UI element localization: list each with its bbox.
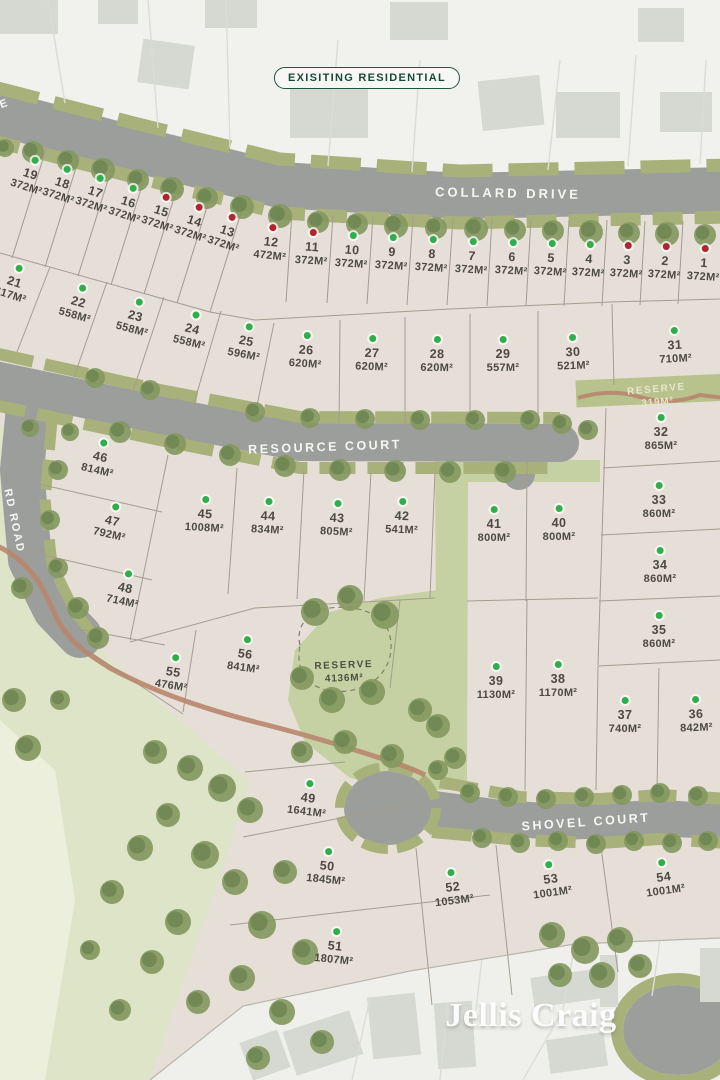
- lot-status-dot: [434, 336, 441, 343]
- lot-number: 10: [344, 243, 360, 259]
- lot-number: 5: [547, 251, 555, 266]
- lot-area: 372M²: [8, 177, 43, 200]
- street-label-rd-road: RD ROAD: [1, 488, 26, 554]
- lot-status-dot: [129, 184, 138, 193]
- lot-area: 372M²: [139, 214, 174, 237]
- lot-status-dot: [334, 500, 341, 507]
- lot-area: 800M²: [543, 531, 576, 544]
- lot-number: 26: [298, 343, 314, 359]
- lot-50: 501845M²: [306, 846, 349, 889]
- lot-29: 29557M²: [487, 336, 520, 375]
- lot-56: 56841M²: [226, 634, 264, 677]
- lot-status-dot: [509, 239, 516, 246]
- lot-area: 865M²: [645, 440, 678, 453]
- lot-area: 596M²: [226, 346, 261, 365]
- lot-area: 814M²: [80, 461, 115, 481]
- lot-area: 1130M²: [477, 689, 516, 702]
- lot-status-dot: [692, 696, 699, 703]
- lot-area: 740M²: [609, 723, 642, 736]
- lot-area: 1008M²: [184, 521, 224, 536]
- lot-area: 372M²: [172, 224, 207, 247]
- street-label-collard-drive: COLLARD DRIVE: [435, 184, 581, 202]
- lot-status-dot: [172, 654, 180, 662]
- lot-24: 24558M²: [171, 308, 212, 354]
- lot-55: 55476M²: [154, 652, 192, 696]
- lot-area: 1170M²: [539, 687, 578, 700]
- lot-area: 476M²: [154, 677, 188, 695]
- lot-51: 511807M²: [314, 926, 357, 969]
- reserve-label: RESERVE319M²: [627, 380, 688, 411]
- lot-status-dot: [325, 848, 333, 856]
- lot-number: 50: [319, 858, 335, 874]
- lot-area: 372M²: [454, 263, 488, 278]
- lot-status-dot: [491, 506, 498, 513]
- lot-status-dot: [309, 229, 316, 236]
- lot-46: 46814M²: [80, 436, 121, 482]
- lot-41: 41800M²: [478, 506, 511, 545]
- lot-number: 39: [489, 674, 504, 689]
- lot-43: 43805M²: [320, 499, 355, 540]
- lot-area: 472M²: [253, 248, 287, 265]
- lot-status-dot: [548, 240, 555, 247]
- lot-number: 29: [496, 347, 511, 362]
- lot-area: 372M²: [494, 264, 528, 279]
- lot-33: 33860M²: [643, 482, 676, 521]
- lot-39: 391130M²: [477, 663, 516, 702]
- lot-area: 834M²: [251, 523, 284, 538]
- lot-4: 4372M²: [571, 240, 606, 281]
- lot-area: 372M²: [294, 254, 328, 269]
- lot-number: 30: [565, 345, 580, 361]
- lot-number: 7: [468, 249, 476, 264]
- reserve-name: RESERVE: [314, 658, 373, 673]
- lot-number: 12: [263, 234, 279, 250]
- lot-status-dot: [78, 284, 87, 293]
- lot-status-dot: [124, 570, 132, 578]
- lot-status-dot: [399, 498, 406, 505]
- lot-10: 10372M²: [334, 231, 369, 272]
- lot-status-dot: [15, 264, 24, 273]
- lot-7: 7372M²: [454, 237, 489, 278]
- lot-5: 5372M²: [533, 239, 568, 280]
- lot-34: 34860M²: [644, 547, 677, 586]
- lot-status-dot: [243, 636, 251, 644]
- lot-status-dot: [658, 414, 665, 421]
- lot-26: 26620M²: [288, 331, 323, 372]
- lot-area: 558M²: [57, 305, 92, 327]
- lot-area: 842M²: [680, 721, 713, 735]
- lot-status-dot: [662, 243, 669, 250]
- agency-logo: Jellis Craig: [445, 997, 616, 1035]
- lot-status-dot: [556, 505, 563, 512]
- lot-number: 2: [661, 254, 669, 269]
- lot-number: 6: [508, 250, 516, 265]
- lot-35: 35860M²: [643, 612, 676, 651]
- lot-11: 11372M²: [294, 228, 329, 269]
- lot-status-dot: [429, 236, 436, 243]
- lot-area: 558M²: [171, 333, 206, 354]
- lot-area: 1001M²: [646, 882, 687, 901]
- lot-30: 30521M²: [556, 333, 590, 373]
- lot-52: 521053M²: [431, 867, 475, 911]
- lot-number: 44: [260, 509, 275, 525]
- lot-status-dot: [63, 165, 72, 174]
- lot-area: 372M²: [205, 234, 240, 257]
- lot-number: 9: [388, 245, 396, 260]
- lot-status-dot: [447, 869, 455, 877]
- lot-number: 38: [551, 672, 566, 687]
- lot-status-dot: [265, 498, 272, 505]
- lot-area: 714M²: [105, 592, 140, 612]
- lot-number: 45: [197, 507, 212, 523]
- lot-number: 32: [654, 425, 669, 440]
- lot-status-dot: [111, 503, 119, 511]
- lot-6: 6372M²: [494, 238, 529, 279]
- lot-status-dot: [657, 547, 664, 554]
- reserve-area: 4136M²: [315, 671, 374, 686]
- lot-48: 48714M²: [105, 567, 145, 612]
- lot-32: 32865M²: [645, 414, 678, 453]
- lot-22: 22558M²: [57, 280, 99, 327]
- lot-area: 805M²: [320, 525, 353, 540]
- lot-40: 40800M²: [543, 505, 576, 544]
- lot-44: 44834M²: [251, 497, 286, 538]
- lot-number: 49: [300, 790, 316, 807]
- lot-area: 372M²: [571, 266, 605, 281]
- lot-23: 23558M²: [114, 294, 156, 340]
- lot-37: 37740M²: [609, 697, 642, 736]
- street-label-resource-court: RESOURCE COURT: [248, 437, 402, 456]
- lot-area: 710M²: [659, 352, 692, 367]
- lot-31: 31710M²: [658, 326, 693, 367]
- lot-area: 557M²: [487, 362, 520, 375]
- lot-number: 33: [652, 493, 667, 508]
- lot-area: 372M²: [40, 186, 75, 209]
- estate-map: EXISITING RESIDENTIAL COLLARD DRIVERESOU…: [0, 0, 720, 1080]
- lot-9: 9372M²: [374, 233, 409, 274]
- lot-area: 792M²: [92, 525, 127, 545]
- lot-status-dot: [162, 193, 171, 202]
- lot-8: 8372M²: [414, 235, 449, 276]
- lot-status-dot: [701, 245, 708, 252]
- lot-area: 372M²: [533, 265, 567, 280]
- lot-area: 1845M²: [306, 872, 346, 889]
- lot-status-dot: [545, 861, 553, 869]
- lot-number: 36: [688, 707, 703, 723]
- lot-number: 42: [394, 509, 409, 525]
- lot-status-dot: [500, 336, 507, 343]
- lot-area: 620M²: [355, 360, 388, 374]
- lot-status-dot: [493, 663, 500, 670]
- lot-number: 11: [305, 240, 320, 256]
- lot-area: 800M²: [478, 532, 511, 545]
- street-label-e: E: [0, 97, 10, 111]
- lot-status-dot: [245, 323, 253, 331]
- lot-28: 28620M²: [420, 336, 453, 376]
- lot-21: 21617M²: [0, 260, 36, 307]
- lot-area: 620M²: [420, 362, 453, 376]
- lot-number: 35: [652, 623, 667, 638]
- lot-number: 51: [327, 938, 343, 954]
- lot-area: 1053M²: [434, 893, 474, 911]
- lot-status-dot: [389, 234, 396, 241]
- lot-status-dot: [670, 327, 677, 334]
- lot-number: 3: [623, 253, 631, 268]
- lot-area: 372M²: [414, 261, 448, 276]
- existing-residential-badge: EXISITING RESIDENTIAL: [274, 67, 460, 89]
- lot-area: 1001M²: [533, 884, 574, 903]
- lot-status-dot: [349, 232, 356, 239]
- lot-status-dot: [135, 298, 144, 307]
- lot-area: 372M²: [73, 195, 108, 218]
- lot-25: 25596M²: [226, 320, 266, 365]
- lot-area: 541M²: [385, 523, 418, 537]
- lot-status-dot: [569, 334, 576, 341]
- lot-36: 36842M²: [679, 695, 713, 735]
- lot-status-dot: [303, 332, 310, 339]
- lot-number: 40: [552, 516, 567, 531]
- lot-status-dot: [96, 174, 105, 183]
- lot-38: 381170M²: [539, 661, 578, 700]
- lot-area: 860M²: [643, 638, 676, 651]
- lot-area: 372M²: [686, 270, 720, 285]
- lot-status-dot: [333, 928, 341, 936]
- lot-number: 41: [487, 517, 502, 532]
- street-label-shovel-court: SHOVEL COURT: [521, 811, 651, 834]
- lot-status-dot: [622, 697, 629, 704]
- lot-area: 372M²: [334, 257, 368, 272]
- lot-49: 491641M²: [286, 778, 330, 822]
- lot-3: 3372M²: [609, 241, 644, 282]
- lot-45: 451008M²: [184, 495, 225, 536]
- lot-area: 521M²: [557, 359, 590, 373]
- lot-area: 372M²: [374, 259, 408, 274]
- lot-number: 34: [653, 558, 668, 573]
- lot-area: 372M²: [609, 267, 643, 282]
- lot-area: 1641M²: [286, 804, 326, 822]
- lot-12: 12472M²: [253, 222, 290, 264]
- lot-42: 42541M²: [385, 497, 419, 537]
- lot-53: 531001M²: [529, 858, 573, 902]
- reserve-label: RESERVE4136M²: [314, 658, 374, 686]
- lot-area: 841M²: [226, 660, 260, 678]
- lot-area: 860M²: [644, 573, 677, 586]
- lot-status-dot: [469, 238, 476, 245]
- lot-number: 37: [618, 708, 633, 723]
- lot-area: 372M²: [647, 268, 681, 283]
- lot-number: 28: [430, 347, 445, 362]
- lot-status-dot: [658, 859, 666, 867]
- lot-2: 2372M²: [647, 242, 682, 283]
- lot-number: 1: [700, 256, 708, 271]
- lot-number: 31: [667, 338, 682, 354]
- lot-27: 27620M²: [355, 334, 389, 374]
- lot-area: 558M²: [114, 320, 149, 341]
- lot-status-dot: [624, 242, 631, 249]
- lot-status-dot: [306, 780, 314, 788]
- lot-area: 620M²: [288, 357, 322, 372]
- lot-number: 8: [428, 247, 436, 262]
- lot-54: 541001M²: [642, 856, 686, 900]
- lot-status-dot: [192, 311, 200, 319]
- lot-area: 1807M²: [314, 952, 354, 969]
- lot-status-dot: [656, 482, 663, 489]
- lot-area: 860M²: [643, 508, 676, 521]
- lot-status-dot: [31, 156, 40, 165]
- lot-status-dot: [555, 661, 562, 668]
- lot-status-dot: [586, 241, 593, 248]
- lot-status-dot: [656, 612, 663, 619]
- lot-status-dot: [228, 213, 237, 222]
- lot-number: 4: [585, 252, 593, 267]
- lot-status-dot: [369, 335, 376, 342]
- lot-47: 47792M²: [92, 500, 133, 546]
- lot-number: 43: [329, 511, 344, 527]
- lot-status-dot: [202, 496, 209, 503]
- lot-status-dot: [269, 224, 277, 232]
- lot-area: 372M²: [106, 205, 141, 228]
- lot-status-dot: [99, 439, 107, 447]
- lot-1: 1372M²: [686, 244, 720, 285]
- lot-status-dot: [195, 203, 204, 212]
- lot-number: 27: [364, 346, 379, 362]
